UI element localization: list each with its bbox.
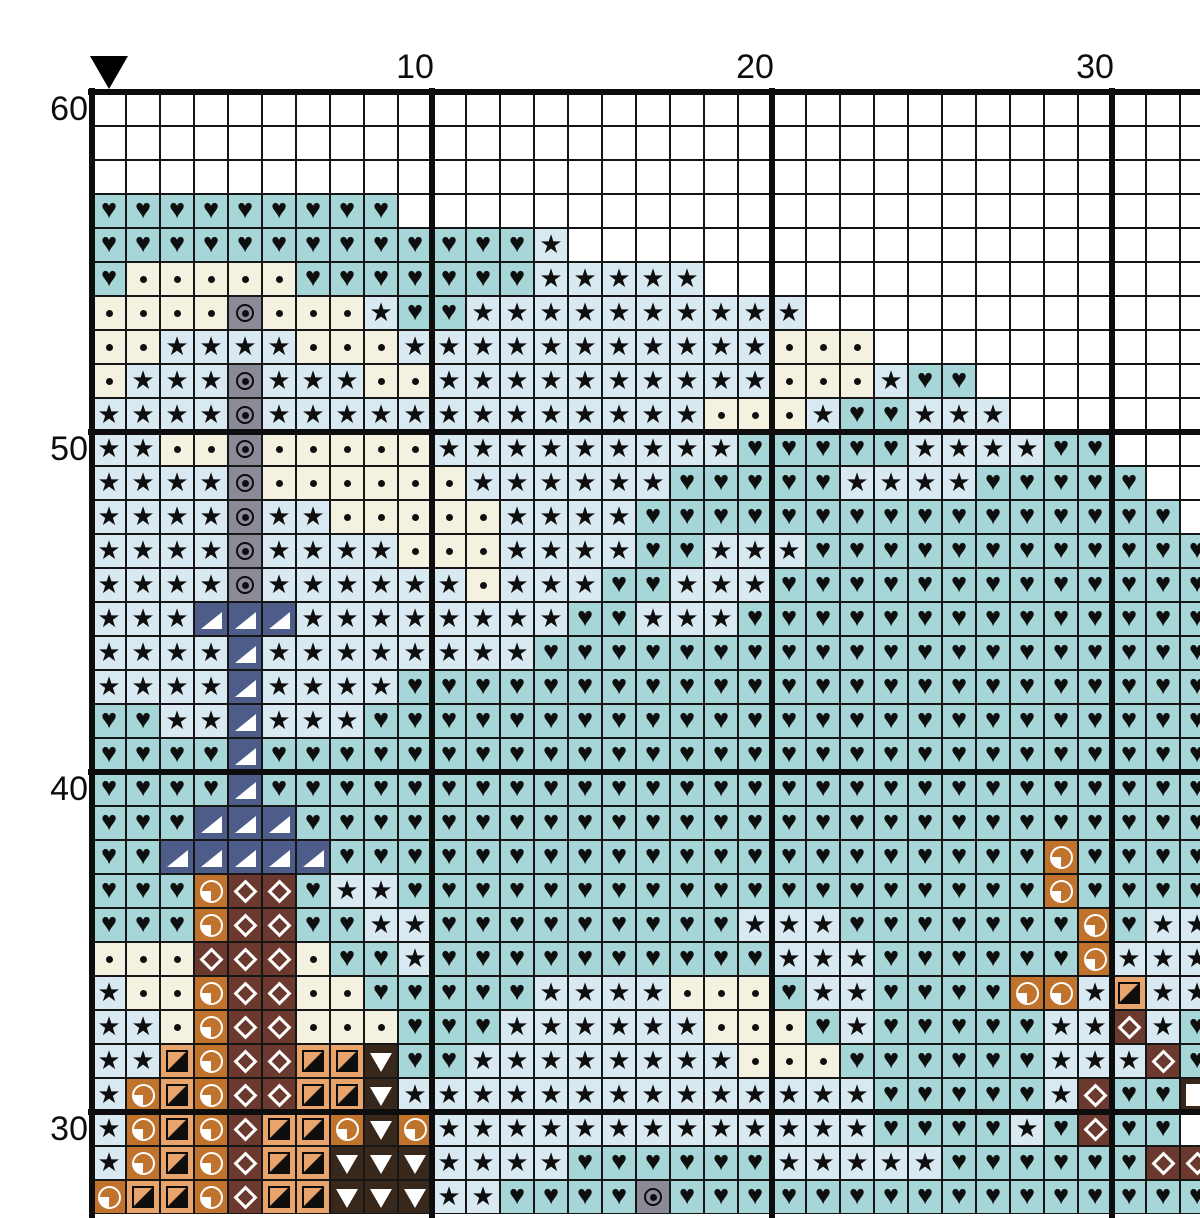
grid-cell (92, 160, 126, 194)
grid-cell (500, 704, 534, 738)
grid-cell (194, 364, 228, 398)
grid-cell (126, 1180, 160, 1214)
column-number-label: 30 (1076, 48, 1114, 86)
grid-cell (908, 534, 942, 568)
grid-cell (500, 160, 534, 194)
grid-cell (1112, 908, 1146, 942)
grid-cell (942, 1180, 976, 1214)
grid-cell (602, 160, 636, 194)
grid-cell (398, 1112, 432, 1146)
grid-cell (398, 398, 432, 432)
grid-cell (228, 704, 262, 738)
grid-cell (874, 908, 908, 942)
grid-cell (840, 942, 874, 976)
grid-cell (296, 568, 330, 602)
grid-cell (636, 126, 670, 160)
grid-cell (1180, 296, 1200, 330)
grid-cell (1180, 806, 1200, 840)
grid-cell (296, 1180, 330, 1214)
grid-cell (908, 772, 942, 806)
grid-cell (466, 194, 500, 228)
grid-cell (1078, 330, 1112, 364)
grid-cell (398, 602, 432, 636)
grid-cell (92, 1078, 126, 1112)
grid-cell (874, 704, 908, 738)
grid-cell (296, 432, 330, 466)
grid-cell (126, 908, 160, 942)
grid-cell (806, 874, 840, 908)
grid-cell (398, 92, 432, 126)
grid-cell (772, 500, 806, 534)
grid-cell (840, 262, 874, 296)
grid-cell (1078, 806, 1112, 840)
grid-cell (1010, 704, 1044, 738)
grid-cell (670, 330, 704, 364)
grid-cell (1010, 942, 1044, 976)
grid-cell (500, 262, 534, 296)
grid-cell (976, 908, 1010, 942)
grid-cell (296, 636, 330, 670)
grid-cell (1010, 874, 1044, 908)
grid-cell (806, 1078, 840, 1112)
grid-cell (568, 942, 602, 976)
grid-cell (806, 262, 840, 296)
grid-cell (364, 296, 398, 330)
grid-cell (398, 738, 432, 772)
grid-cell (1180, 534, 1200, 568)
grid-cell (704, 1146, 738, 1180)
major-gridline-horizontal (88, 429, 1200, 435)
grid-cell (160, 194, 194, 228)
grid-cell (92, 602, 126, 636)
grid-cell (364, 1044, 398, 1078)
grid-cell (806, 670, 840, 704)
grid-cell (636, 432, 670, 466)
grid-cell (398, 1010, 432, 1044)
column-number-label: 20 (736, 48, 774, 86)
grid-cell (296, 126, 330, 160)
grid-cell (296, 398, 330, 432)
grid-cell (194, 772, 228, 806)
grid-cell (330, 806, 364, 840)
grid-cell (466, 636, 500, 670)
grid-cell (296, 976, 330, 1010)
grid-cell (840, 670, 874, 704)
grid-cell (398, 296, 432, 330)
grid-cell (432, 806, 466, 840)
grid-cell (126, 500, 160, 534)
grid-cell (1180, 1010, 1200, 1044)
grid-cell (92, 126, 126, 160)
grid-cell (908, 398, 942, 432)
grid-cell (1010, 772, 1044, 806)
grid-cell (330, 330, 364, 364)
grid-cell (330, 942, 364, 976)
grid-cell (1146, 92, 1180, 126)
grid-cell (126, 1044, 160, 1078)
grid-cell (942, 704, 976, 738)
grid-cell (1112, 262, 1146, 296)
grid-cell (806, 466, 840, 500)
column-number-label: 10 (396, 48, 434, 86)
grid-cell (126, 364, 160, 398)
grid-cell (976, 92, 1010, 126)
grid-cell (466, 92, 500, 126)
grid-cell (670, 296, 704, 330)
grid-cell (1146, 1078, 1180, 1112)
grid-cell (1010, 670, 1044, 704)
grid-cell (1180, 466, 1200, 500)
grid-cell (568, 330, 602, 364)
grid-cell (126, 704, 160, 738)
grid-cell (432, 772, 466, 806)
grid-cell (432, 160, 466, 194)
grid-cell (500, 1146, 534, 1180)
grid-cell (432, 1078, 466, 1112)
grid-cell (92, 194, 126, 228)
grid-cell (534, 704, 568, 738)
grid-cell (466, 738, 500, 772)
grid-cell (228, 364, 262, 398)
grid-cell (228, 160, 262, 194)
grid-cell (228, 1146, 262, 1180)
grid-cell (432, 466, 466, 500)
grid-cell (330, 262, 364, 296)
grid-cell (432, 364, 466, 398)
grid-cell (704, 296, 738, 330)
grid-cell (1146, 772, 1180, 806)
grid-cell (840, 432, 874, 466)
grid-cell (874, 398, 908, 432)
grid-cell (1112, 1078, 1146, 1112)
grid-cell (296, 466, 330, 500)
grid-cell (942, 942, 976, 976)
major-gridline-vertical (769, 88, 775, 1218)
grid-cell (806, 160, 840, 194)
grid-cell (160, 1044, 194, 1078)
grid-cell (1146, 432, 1180, 466)
grid-cell (534, 602, 568, 636)
grid-cell (1078, 466, 1112, 500)
grid-cell (228, 602, 262, 636)
grid-cell (704, 1078, 738, 1112)
grid-cell (534, 228, 568, 262)
grid-cell (160, 976, 194, 1010)
grid-cell (704, 500, 738, 534)
grid-cell (1180, 1112, 1200, 1146)
grid-cell (976, 466, 1010, 500)
grid-cell (500, 228, 534, 262)
grid-cell (942, 976, 976, 1010)
grid-cell (1010, 738, 1044, 772)
grid-cell (908, 1146, 942, 1180)
grid-cell (976, 1044, 1010, 1078)
grid-cell (1010, 1010, 1044, 1044)
grid-cell (806, 976, 840, 1010)
major-gridline-horizontal (88, 769, 1200, 775)
grid-cell (602, 1180, 636, 1214)
grid-cell (908, 1078, 942, 1112)
grid-cell (704, 1112, 738, 1146)
grid-cell (160, 296, 194, 330)
grid-cell (500, 976, 534, 1010)
grid-cell (126, 602, 160, 636)
grid-cell (92, 92, 126, 126)
grid-cell (704, 534, 738, 568)
grid-cell (806, 568, 840, 602)
grid-cell (398, 840, 432, 874)
grid-cell (908, 194, 942, 228)
grid-cell (874, 500, 908, 534)
grid-cell (602, 126, 636, 160)
grid-cell (262, 500, 296, 534)
grid-cell (1010, 466, 1044, 500)
grid-cell (364, 92, 398, 126)
grid-cell (1146, 500, 1180, 534)
grid-cell (398, 466, 432, 500)
grid-cell (908, 1112, 942, 1146)
grid-cell (1078, 194, 1112, 228)
grid-cell (330, 704, 364, 738)
grid-cell (194, 1044, 228, 1078)
grid-cell (602, 364, 636, 398)
grid-cell (126, 1112, 160, 1146)
grid-cell (1112, 670, 1146, 704)
grid-cell (670, 1146, 704, 1180)
grid-cell (806, 228, 840, 262)
grid-cell (670, 500, 704, 534)
grid-cell (92, 976, 126, 1010)
grid-cell (126, 568, 160, 602)
grid-cell (772, 466, 806, 500)
grid-cell (636, 568, 670, 602)
grid-cell (534, 1078, 568, 1112)
grid-cell (976, 840, 1010, 874)
grid-cell (670, 1078, 704, 1112)
grid-cell (704, 602, 738, 636)
grid-cell (330, 568, 364, 602)
grid-cell (534, 908, 568, 942)
grid-cell (636, 1180, 670, 1214)
grid-cell (704, 194, 738, 228)
grid-cell (738, 1044, 772, 1078)
grid-cell (466, 1146, 500, 1180)
grid-cell (126, 738, 160, 772)
grid-cell (432, 534, 466, 568)
grid-cell (840, 568, 874, 602)
grid-cell (126, 398, 160, 432)
grid-cell (942, 1010, 976, 1044)
grid-cell (806, 500, 840, 534)
grid-cell (364, 636, 398, 670)
grid-cell (1180, 738, 1200, 772)
grid-cell (1146, 160, 1180, 194)
grid-cell (670, 942, 704, 976)
grid-cell (1010, 432, 1044, 466)
grid-cell (330, 670, 364, 704)
grid-cell (194, 840, 228, 874)
grid-cell (568, 1010, 602, 1044)
grid-cell (1044, 500, 1078, 534)
grid-cell (160, 534, 194, 568)
grid-cell (976, 1078, 1010, 1112)
grid-cell (126, 840, 160, 874)
grid-cell (296, 330, 330, 364)
grid-cell (772, 704, 806, 738)
grid-cell (704, 806, 738, 840)
major-gridline-horizontal (88, 89, 1200, 95)
grid-cell (1146, 262, 1180, 296)
grid-cell (772, 942, 806, 976)
grid-cell (1078, 1180, 1112, 1214)
grid-cell (262, 398, 296, 432)
grid-cell (364, 840, 398, 874)
grid-cell (1078, 534, 1112, 568)
grid-cell (194, 126, 228, 160)
grid-cell (1146, 636, 1180, 670)
grid-cell (1044, 908, 1078, 942)
grid-cell (602, 704, 636, 738)
grid-cell (874, 534, 908, 568)
grid-cell (262, 296, 296, 330)
grid-cell (228, 1112, 262, 1146)
grid-cell (704, 1010, 738, 1044)
grid-cell (976, 772, 1010, 806)
grid-cell (466, 1010, 500, 1044)
grid-cell (432, 874, 466, 908)
grid-cell (534, 330, 568, 364)
grid-cell (194, 738, 228, 772)
grid-cell (1146, 466, 1180, 500)
grid-cell (1010, 92, 1044, 126)
grid-cell (1044, 534, 1078, 568)
grid-cell (1112, 1112, 1146, 1146)
grid-cell (432, 636, 466, 670)
grid-cell (942, 874, 976, 908)
grid-cell (228, 1078, 262, 1112)
grid-cell (126, 1146, 160, 1180)
grid-cell (1078, 296, 1112, 330)
grid-cell (602, 840, 636, 874)
grid-cell (738, 500, 772, 534)
grid-cell (670, 976, 704, 1010)
grid-cell (840, 704, 874, 738)
grid-cell (160, 500, 194, 534)
grid-cell (194, 636, 228, 670)
grid-cell (126, 1078, 160, 1112)
grid-cell (262, 330, 296, 364)
grid-cell (1112, 806, 1146, 840)
row-number-label: 50 (22, 430, 88, 468)
grid-cell (670, 908, 704, 942)
grid-cell (534, 1112, 568, 1146)
grid-cell (874, 432, 908, 466)
grid-cell (500, 500, 534, 534)
grid-cell (296, 670, 330, 704)
grid-cell (1112, 296, 1146, 330)
grid-cell (636, 636, 670, 670)
grid-cell (636, 806, 670, 840)
grid-cell (194, 194, 228, 228)
grid-cell (500, 602, 534, 636)
grid-cell (704, 92, 738, 126)
grid-cell (1078, 670, 1112, 704)
grid-cell (738, 704, 772, 738)
grid-cell (1146, 942, 1180, 976)
grid-cell (126, 1010, 160, 1044)
grid-cell (942, 160, 976, 194)
grid-cell (126, 228, 160, 262)
grid-cell (636, 738, 670, 772)
grid-cell (602, 296, 636, 330)
grid-cell (840, 194, 874, 228)
grid-cell (262, 704, 296, 738)
grid-cell (806, 840, 840, 874)
grid-cell (432, 228, 466, 262)
grid-cell (976, 1010, 1010, 1044)
grid-cell (262, 738, 296, 772)
grid-cell (500, 92, 534, 126)
grid-cell (806, 1010, 840, 1044)
grid-cell (364, 534, 398, 568)
grid-cell (534, 568, 568, 602)
grid-cell (126, 806, 160, 840)
grid-cell (908, 670, 942, 704)
grid-cell (160, 1146, 194, 1180)
grid-cell (636, 228, 670, 262)
grid-cell (262, 670, 296, 704)
grid-cell (908, 466, 942, 500)
grid-cell (772, 670, 806, 704)
grid-cell (602, 262, 636, 296)
grid-cell (1078, 772, 1112, 806)
grid-cell (194, 806, 228, 840)
major-gridline-vertical (89, 88, 95, 1218)
grid-cell (636, 772, 670, 806)
grid-cell (942, 1044, 976, 1078)
grid-cell (942, 262, 976, 296)
grid-cell (1010, 296, 1044, 330)
grid-cell (398, 908, 432, 942)
grid-cell (1078, 228, 1112, 262)
grid-cell (874, 976, 908, 1010)
grid-cell (1112, 1180, 1146, 1214)
grid-cell (1044, 704, 1078, 738)
grid-cell (840, 330, 874, 364)
grid-cell (942, 92, 976, 126)
grid-cell (364, 806, 398, 840)
grid-cell (1044, 670, 1078, 704)
grid-cell (330, 772, 364, 806)
grid-cell (1112, 1044, 1146, 1078)
grid-cell (1010, 500, 1044, 534)
grid-cell (772, 1010, 806, 1044)
grid-cell (1078, 398, 1112, 432)
grid-cell (772, 1180, 806, 1214)
grid-cell (1044, 1112, 1078, 1146)
grid-cell (806, 704, 840, 738)
grid-cell (466, 1112, 500, 1146)
grid-cell (262, 1044, 296, 1078)
grid-cell (466, 126, 500, 160)
grid-cell (1044, 92, 1078, 126)
grid-cell (908, 1044, 942, 1078)
grid-cell (636, 194, 670, 228)
grid-cell (908, 568, 942, 602)
grid-cell (466, 330, 500, 364)
grid-cell (1044, 160, 1078, 194)
grid-cell (1010, 364, 1044, 398)
